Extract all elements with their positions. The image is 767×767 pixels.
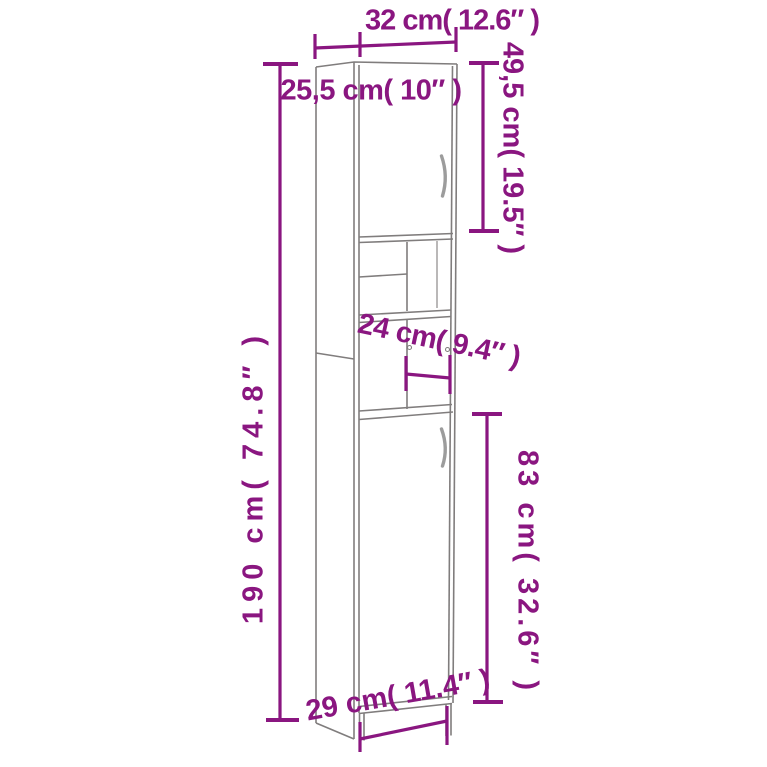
shelf-depth-dimension-line — [406, 355, 450, 394]
top-door-frame-edge — [359, 239, 453, 243]
overall-height-label: 190 cm( 74.8″ ) — [240, 330, 269, 624]
cabinet-right-edge — [453, 64, 457, 703]
dimension-lines — [263, 27, 503, 752]
top-door-handle-icon — [442, 156, 446, 196]
top-door — [359, 156, 453, 243]
dimension-diagram: 32 cm( 12.6″ ) 25,5 cm( 10″ ) 49,5 cm( 1… — [0, 0, 767, 767]
side-panel-divider — [316, 353, 354, 359]
top-door-dimension-line — [469, 63, 499, 231]
bottom-door-height-label: 83 cm( 32.6″ ) — [513, 450, 542, 694]
cabinet-outline — [316, 62, 457, 739]
cabinet-top-edge — [316, 62, 457, 67]
top-door-height-label: 49,5 cm( 19.5″ ) — [498, 42, 527, 254]
overall-width-label: 32 cm( 12.6″ ) — [365, 7, 539, 36]
niche-bottom-back-edge — [359, 405, 452, 412]
bottom-door-dimension-line — [472, 414, 503, 702]
cabinet-line-art — [0, 0, 767, 767]
niche-bottom-front-edge — [359, 412, 453, 420]
niche-back-top-edge — [359, 274, 407, 277]
side-panel-bottom-edge — [316, 723, 354, 739]
top-door-bottom-edge — [359, 234, 453, 238]
bottom-door-handle-icon — [442, 429, 446, 466]
overall-depth-label: 25,5 cm( 10″ ) — [281, 77, 462, 106]
